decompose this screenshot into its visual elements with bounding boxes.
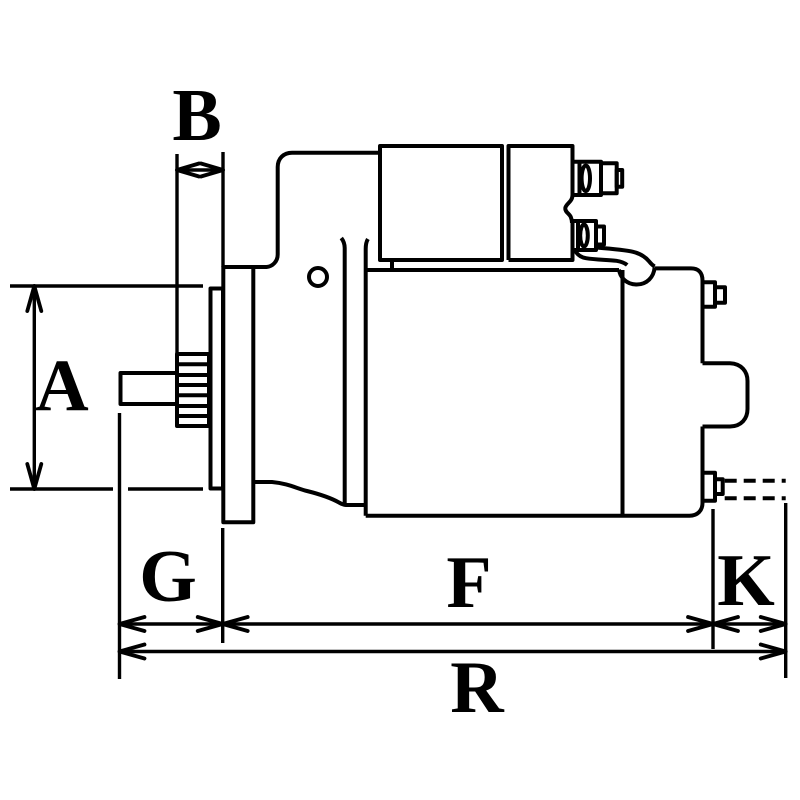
- upper-terminal-stud-end: [617, 170, 623, 187]
- solenoid-terminal-notch: [565, 195, 572, 223]
- dimension-label-k: K: [717, 540, 775, 622]
- yoke-bottom-edge: [366, 427, 703, 516]
- upper-through-bolt-tip: [715, 287, 725, 302]
- hidden-stud-dashed-lines: [725, 481, 786, 499]
- lower-terminal-stud-end: [596, 227, 604, 245]
- mounting-flange: [223, 267, 253, 522]
- motor-outline: [121, 146, 786, 522]
- rear-bearing-boss: [703, 363, 748, 426]
- field-strap-lower-edge: [575, 250, 627, 265]
- lower-through-bolt-tip: [715, 479, 723, 494]
- intermediate-plate: [211, 289, 224, 489]
- pinion-gear-teeth: [177, 364, 209, 416]
- shaft: [121, 373, 178, 404]
- dimension-label-g: G: [139, 536, 197, 618]
- extension-lines-B: [177, 152, 223, 353]
- upper-terminal-nut: [601, 163, 617, 193]
- drawing-canvas: A B G F K R: [0, 0, 800, 800]
- solenoid-body-front: [380, 146, 502, 260]
- dimension-label-a: A: [35, 345, 88, 427]
- solenoid-body-rear: [509, 146, 573, 260]
- end-cap-top-right: [655, 268, 703, 363]
- upper-terminal-cylinder: [582, 166, 590, 192]
- lower-terminal-cylinder: [580, 225, 588, 247]
- starter-motor-dimension-diagram: A B G F K R: [0, 0, 800, 800]
- dimension-label-b: B: [172, 75, 221, 157]
- housing-hole: [309, 268, 327, 286]
- drive-housing-top-profile: [253, 153, 378, 267]
- seam-line-left: [341, 238, 344, 505]
- drive-housing-bottom-profile: [253, 482, 365, 505]
- dimension-label-f: F: [446, 542, 491, 624]
- dimension-label-r: R: [450, 647, 505, 729]
- yoke-left-edge: [366, 239, 368, 516]
